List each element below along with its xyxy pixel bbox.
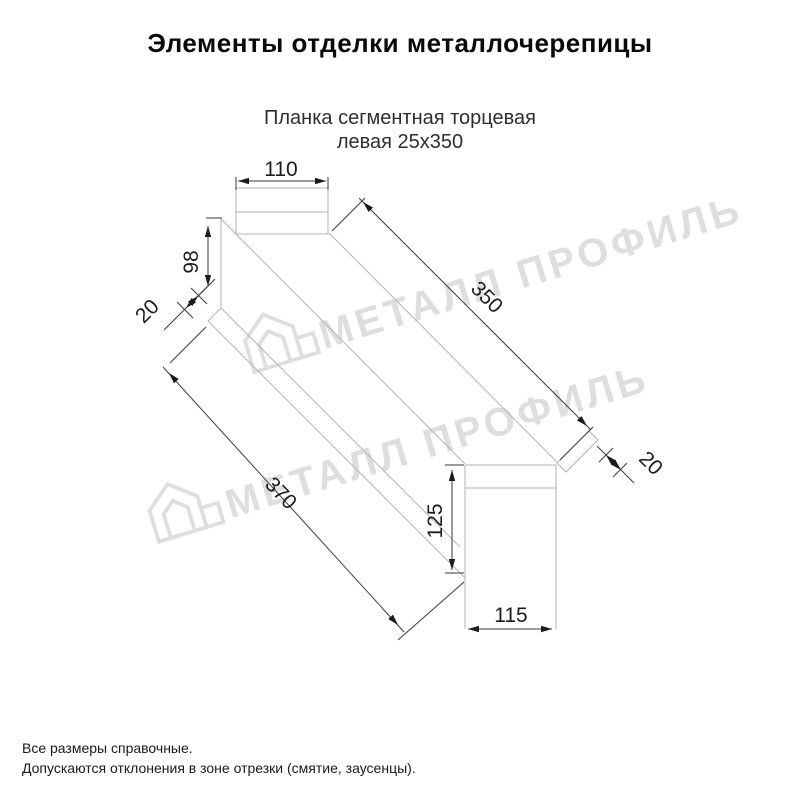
metal-profil-logo-icon bbox=[239, 302, 319, 372]
watermark-upper: МЕТАЛЛ ПРОФИЛЬ bbox=[239, 172, 748, 380]
dimension-20-far: 20 bbox=[597, 446, 667, 483]
dim-label-20-far: 20 bbox=[634, 447, 667, 480]
dim-label-110: 110 bbox=[264, 158, 297, 181]
dim-label-20-near: 20 bbox=[131, 295, 164, 328]
dimension-20-near: 20 bbox=[131, 283, 211, 330]
technical-drawing: МЕТАЛЛ ПРОФИЛЬ МЕТАЛЛ ПРОФИЛЬ bbox=[0, 0, 800, 800]
metal-profil-logo-icon bbox=[144, 472, 224, 542]
watermark-lower: МЕТАЛЛ ПРОФИЛЬ bbox=[144, 341, 655, 549]
dimension-115: 115 bbox=[468, 604, 552, 632]
watermark-text-upper: МЕТАЛЛ ПРОФИЛЬ bbox=[314, 187, 748, 358]
dim-label-98: 98 bbox=[180, 250, 203, 273]
dimension-98: 98 bbox=[180, 218, 222, 297]
document-page: Элементы отделки металлочерепицы Планка … bbox=[0, 0, 800, 800]
dim-label-115: 115 bbox=[494, 604, 527, 627]
dimension-110: 110 bbox=[236, 158, 328, 190]
footer-note-1: Все размеры справочные. bbox=[22, 738, 416, 758]
footer-notes: Все размеры справочные. Допускаются откл… bbox=[22, 738, 416, 778]
dim-label-125: 125 bbox=[424, 503, 447, 538]
footer-note-2: Допускаются отклонения в зоне отрезки (с… bbox=[22, 758, 416, 778]
